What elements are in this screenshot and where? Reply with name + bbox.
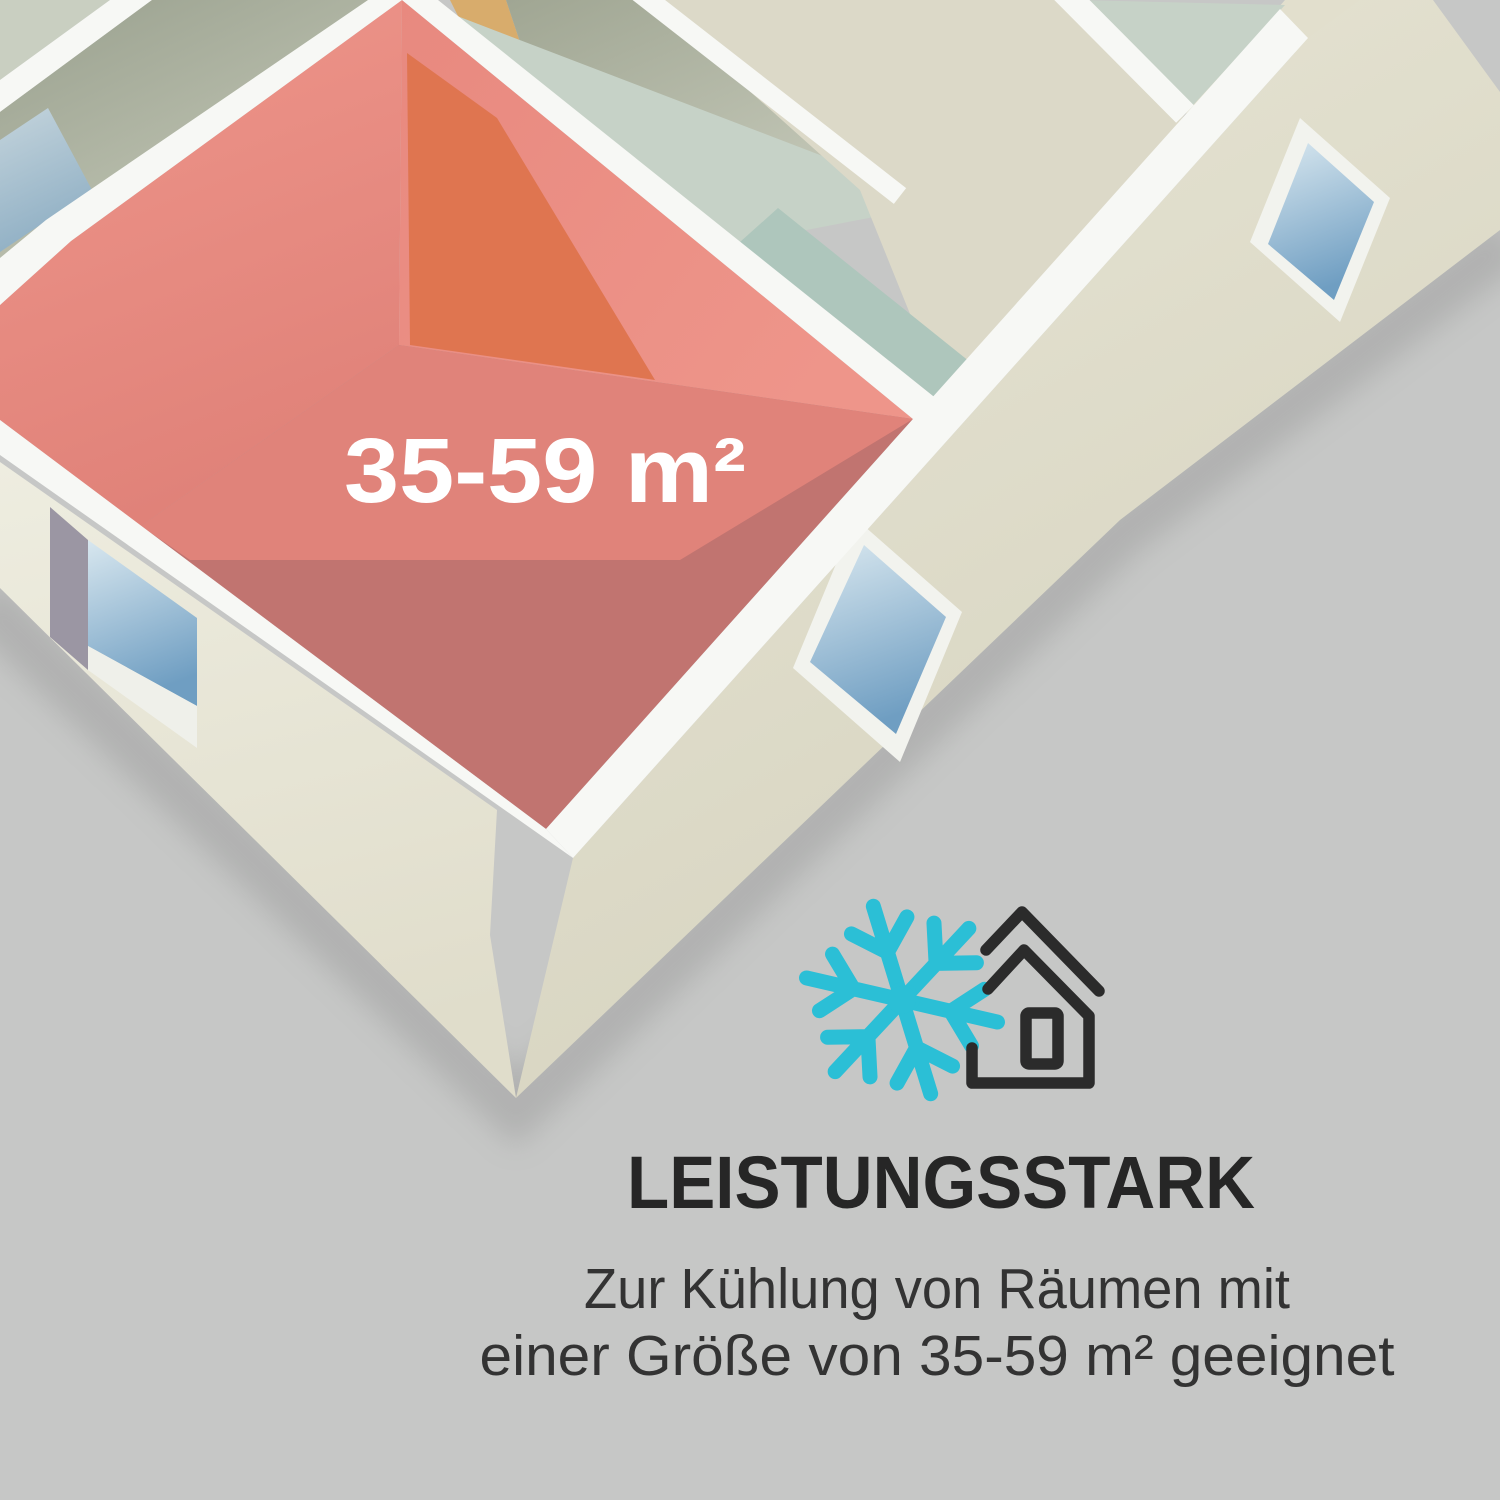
room-size-label: 35-59 m²	[344, 420, 746, 522]
product-infographic: 35-59 m² LEISTUNGSSTARK Zur Kühlung von …	[0, 0, 1500, 1500]
floorplan-illustration: 35-59 m² LEISTUNGSSTARK Zur Kühlung von …	[0, 0, 1500, 1500]
feature-heading: LEISTUNGSSTARK	[627, 1141, 1255, 1224]
feature-description-line2: einer Größe von 35-59 m² geeignet	[480, 1324, 1395, 1388]
feature-description-line1: Zur Kühlung von Räumen mit	[584, 1257, 1290, 1321]
